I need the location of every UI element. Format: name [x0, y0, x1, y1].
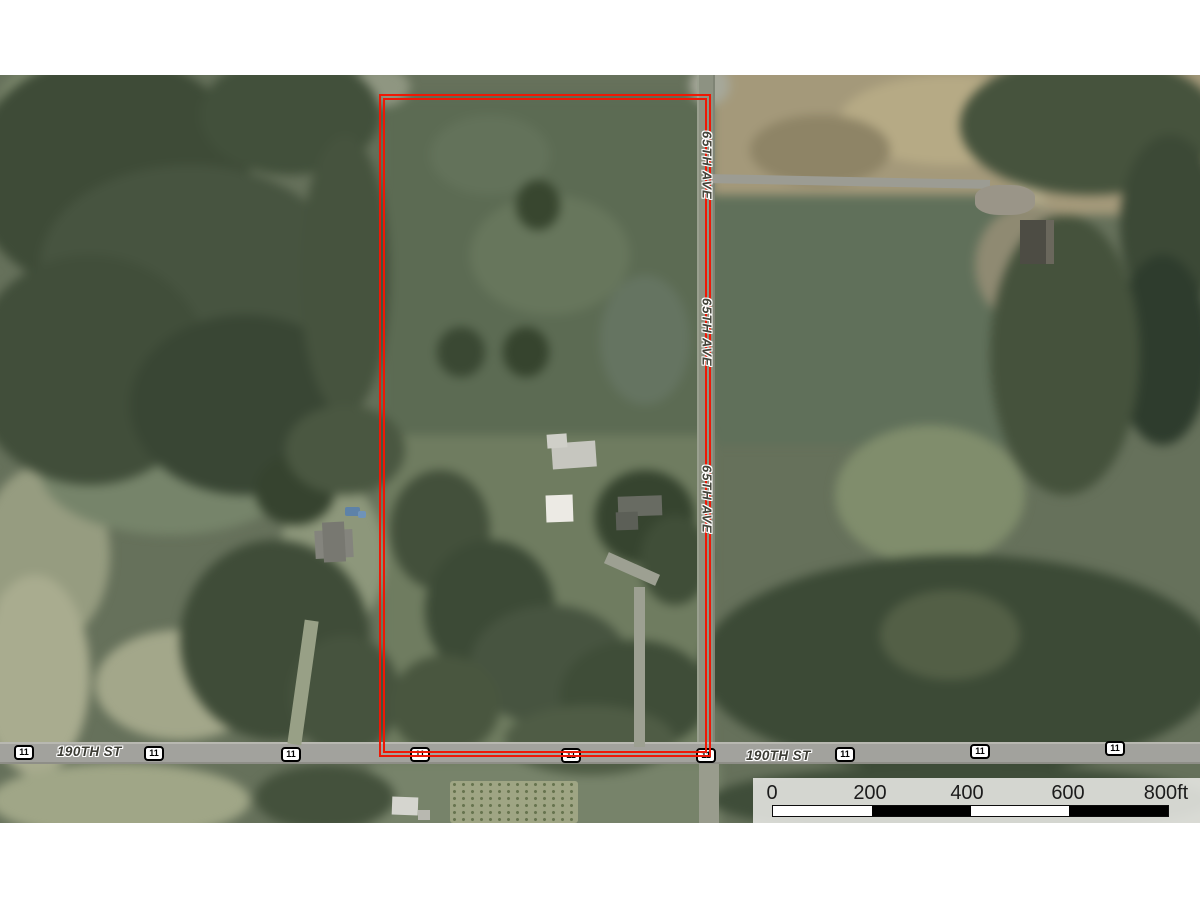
scale-segment [872, 806, 971, 816]
scale-bar [772, 805, 1169, 817]
row-crop-field [450, 781, 578, 823]
driveway [287, 620, 318, 746]
page: { "map": { "type": "aerial-parcel-map", … [0, 0, 1200, 900]
road-stub [699, 764, 719, 823]
small-building [392, 797, 419, 816]
farm-building [1020, 220, 1054, 264]
house-building [322, 521, 346, 562]
driveway [710, 174, 990, 189]
scale-segment [1069, 806, 1168, 816]
property-boundary [379, 94, 711, 757]
scale-segment [773, 806, 872, 816]
driveway [975, 185, 1035, 215]
scale-segment [971, 806, 1070, 816]
small-building [418, 810, 430, 820]
blue-equipment [358, 511, 366, 518]
